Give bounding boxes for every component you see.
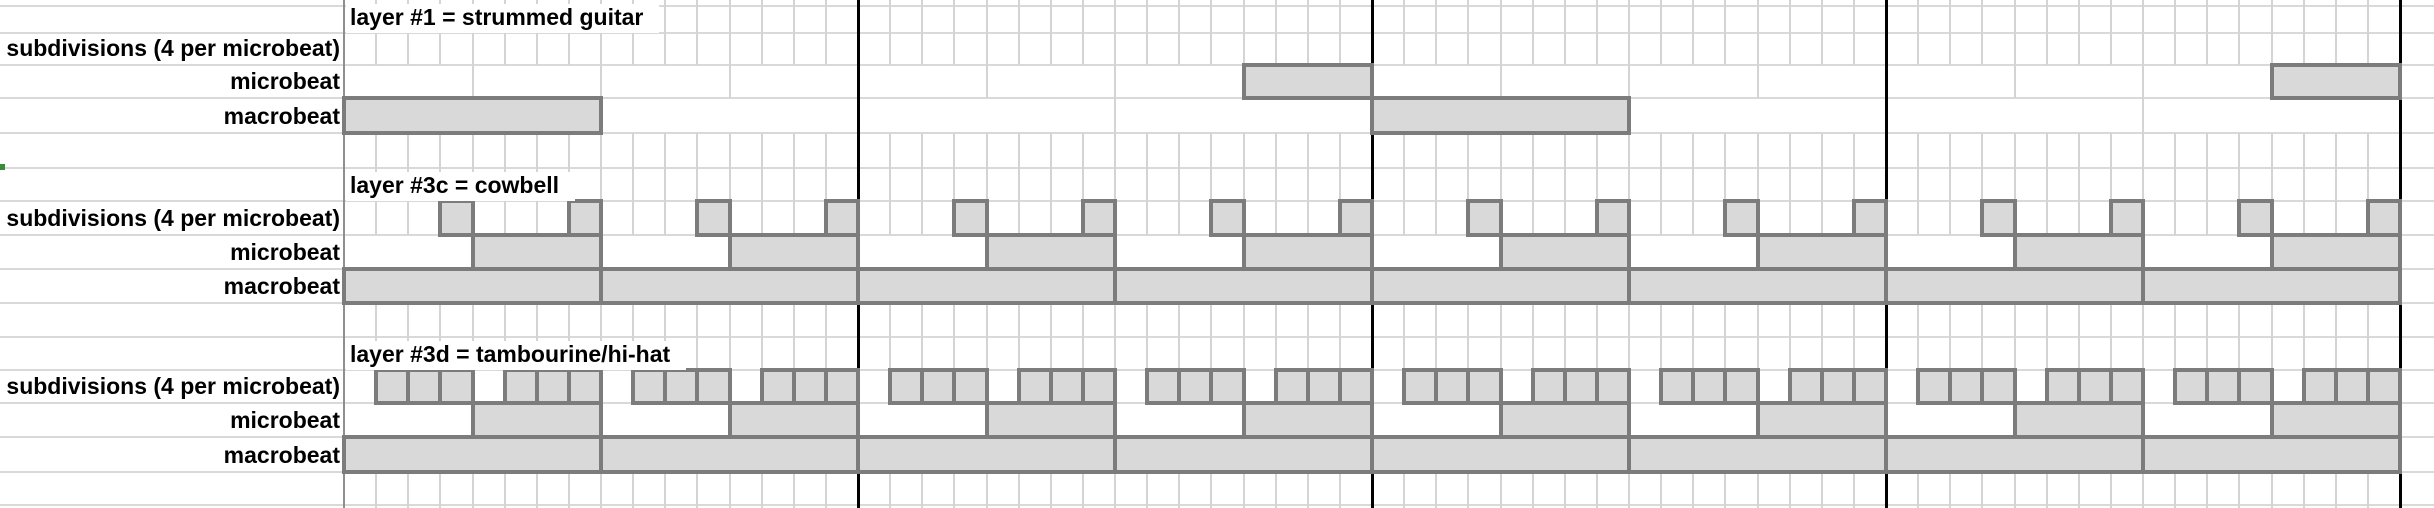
gridline-v [2335, 133, 2337, 168]
gridline-v [2206, 33, 2208, 65]
gridline-v [2206, 133, 2208, 168]
subdivision-cell[interactable] [920, 368, 956, 405]
gridline-v [2367, 337, 2369, 370]
gridline-v [375, 201, 377, 235]
gridline-v [793, 337, 795, 370]
gridline-v [1146, 168, 1148, 201]
gridline-v [2271, 303, 2273, 337]
gridline-v [1178, 303, 1180, 337]
subdivision-cell[interactable] [1466, 368, 1502, 405]
macrobeat-cell[interactable] [1370, 267, 1631, 305]
gridline-v [1243, 33, 1245, 65]
macrobeat-cell[interactable] [1113, 267, 1374, 305]
subdivision-cell[interactable] [2334, 368, 2370, 405]
gridline-v [1243, 472, 1245, 505]
gridline-v [1692, 6, 1694, 33]
subdivision-cell[interactable] [2109, 199, 2145, 237]
gridline-v [2110, 472, 2112, 505]
subdivision-cell[interactable] [1531, 368, 1567, 405]
layer-title: layer #1 = strummed guitar [346, 6, 659, 33]
microbeat-cell[interactable] [2013, 401, 2146, 439]
gridline-v [825, 6, 827, 33]
gridline-v [1724, 6, 1726, 33]
gridline-v [2046, 168, 2048, 201]
gridline-v [504, 201, 506, 235]
gridline-v [2335, 168, 2337, 201]
grid-left-border [343, 0, 345, 508]
gridline-v [2174, 168, 2176, 201]
gridline-v [1596, 168, 1598, 201]
gridline-v [1210, 168, 1212, 201]
gridline-v [1789, 33, 1791, 65]
microbeat-cell[interactable] [2270, 233, 2403, 271]
macrobeat-cell[interactable] [599, 267, 860, 305]
gridline-v [2206, 472, 2208, 505]
gridline-v [921, 6, 923, 33]
gridline-v [1981, 337, 1983, 370]
gridline-v [1050, 33, 1052, 65]
microbeat-cell[interactable] [1756, 233, 1889, 271]
subdivision-cell[interactable] [1563, 368, 1599, 405]
gridline-v [1467, 133, 1469, 168]
subdivision-cell[interactable] [663, 368, 699, 405]
gridline-v [1403, 6, 1405, 33]
gridline-v [921, 472, 923, 505]
gridline-v [2238, 472, 2240, 505]
gridline-v [2303, 472, 2305, 505]
subdivision-cell[interactable] [438, 199, 474, 237]
gridline-v [825, 168, 827, 201]
gridline-v [504, 303, 506, 337]
gridline-v [1917, 133, 1919, 168]
gridline-v [664, 6, 666, 33]
microbeat-cell[interactable] [1499, 233, 1632, 271]
microbeat-cell[interactable] [1242, 233, 1375, 271]
subdivision-cell[interactable] [1209, 368, 1245, 405]
gridline-v [2110, 303, 2112, 337]
gridline-v [664, 472, 666, 505]
gridline-v [1082, 33, 1084, 65]
gridline-v [986, 168, 988, 201]
gridline-v [2367, 168, 2369, 201]
subdivision-cell[interactable] [1338, 368, 1374, 405]
subdivision-cell[interactable] [1723, 199, 1759, 237]
subdivision-cell[interactable] [374, 368, 410, 405]
subdivision-cell[interactable] [760, 368, 796, 405]
gridline-v [1532, 472, 1534, 505]
gridline-v [2335, 201, 2337, 235]
gridline-v [1532, 337, 1534, 370]
gridline-v [2078, 133, 2080, 168]
gridline-v [1564, 337, 1566, 370]
gridline-v [1500, 303, 1502, 337]
gridline-v [2110, 337, 2112, 370]
gridline-v [2238, 303, 2240, 337]
gridline-v [1243, 303, 1245, 337]
gridline-v [2335, 472, 2337, 505]
gridline-v [825, 472, 827, 505]
gridline-v [1018, 337, 1020, 370]
gridline-v [407, 133, 409, 168]
subdivision-cell[interactable] [567, 199, 603, 237]
subdivision-cell[interactable] [2366, 368, 2402, 405]
gridline-v [1500, 337, 1502, 370]
gridline-v [2206, 337, 2208, 370]
gridline-v [2078, 168, 2080, 201]
macrobeat-cell[interactable] [1884, 435, 2145, 474]
gridline-v [889, 133, 891, 168]
subdivision-cell[interactable] [1595, 368, 1631, 405]
gridline-v [729, 337, 731, 370]
gridline-v [2303, 33, 2305, 65]
gridline-v [729, 6, 731, 33]
subdivision-cell[interactable] [1081, 368, 1117, 405]
gridline-v [1564, 303, 1566, 337]
microbeat-cell[interactable] [1242, 63, 1375, 100]
macrobeat-cell[interactable] [1884, 267, 2145, 305]
gridline-v [761, 133, 763, 168]
gridline-v [1178, 6, 1180, 33]
subdivision-cell[interactable] [1691, 368, 1727, 405]
row-label-microbeat: microbeat [0, 403, 340, 437]
gridline-v [472, 65, 474, 98]
gridline-v [1339, 168, 1341, 201]
gridline-v [1628, 168, 1630, 201]
gridline-v [793, 133, 795, 168]
gridline-v [793, 303, 795, 337]
gridline-v [889, 6, 891, 33]
subdivision-cell[interactable] [695, 199, 731, 237]
gridline-v [1435, 201, 1437, 235]
microbeat-cell[interactable] [2013, 233, 2146, 271]
gridline-v [921, 33, 923, 65]
macrobeat-cell[interactable] [2141, 435, 2402, 474]
subdivision-cell[interactable] [824, 199, 860, 237]
macrobeat-cell[interactable] [1627, 435, 1888, 474]
gridline-v [1596, 33, 1598, 65]
subdivision-cell[interactable] [1852, 368, 1888, 405]
microbeat-cell[interactable] [471, 233, 604, 271]
gridline-v [761, 337, 763, 370]
gridline-v [1949, 6, 1951, 33]
subdivision-cell[interactable] [1081, 199, 1117, 237]
microbeat-cell[interactable] [1242, 401, 1375, 439]
gridline-v [407, 33, 409, 65]
gridline-v [2271, 33, 2273, 65]
gridline-v [761, 201, 763, 235]
macrobeat-cell[interactable] [1370, 96, 1631, 135]
gridline-v [889, 472, 891, 505]
microbeat-cell[interactable] [728, 401, 861, 439]
subdivision-cell[interactable] [1402, 368, 1438, 405]
gridline-v [1724, 472, 1726, 505]
subdivision-cell[interactable] [1659, 368, 1695, 405]
subdivision-cell[interactable] [952, 199, 988, 237]
subdivision-cell[interactable] [888, 368, 924, 405]
subdivision-cell[interactable] [1852, 199, 1888, 237]
gridline-v [1853, 168, 1855, 201]
gridline-v [1403, 33, 1405, 65]
gridline-v [1981, 6, 1983, 33]
gridline-v [793, 472, 795, 505]
subdivision-cell[interactable] [1274, 368, 1310, 405]
gridline-v [1403, 133, 1405, 168]
subdivision-cell[interactable] [1338, 199, 1374, 237]
subdivision-cell[interactable] [2077, 368, 2113, 405]
gridline-v [1339, 6, 1341, 33]
gridline-v [1757, 472, 1759, 505]
microbeat-cell[interactable] [2270, 63, 2403, 100]
microbeat-cell[interactable] [1756, 401, 1889, 439]
gridline-v [1532, 201, 1534, 235]
gridline-v [1789, 337, 1791, 370]
microbeat-cell[interactable] [471, 401, 604, 439]
gridline-v [1564, 168, 1566, 201]
macrobeat-cell[interactable] [1370, 435, 1631, 474]
subdivision-cell[interactable] [2237, 368, 2273, 405]
gridline-v [1018, 303, 1020, 337]
subdivision-cell[interactable] [2205, 368, 2241, 405]
gridline-v [375, 133, 377, 168]
gridline-v [632, 201, 634, 235]
gridline-v [1757, 133, 1759, 168]
subdivision-cell[interactable] [503, 368, 539, 405]
subdivision-cell[interactable] [1948, 368, 1984, 405]
gridline-v [1114, 303, 1116, 337]
gridline-v [1243, 337, 1245, 370]
gridline-v [1821, 337, 1823, 370]
gridline-v [2367, 303, 2369, 337]
gridline-v [1050, 337, 1052, 370]
gridline-h [0, 64, 2434, 66]
gridline-v [2142, 133, 2144, 168]
macrobeat-cell[interactable] [599, 435, 860, 474]
gridline-v [889, 168, 891, 201]
layer-title: layer #3d = tambourine/hi-hat [346, 337, 686, 370]
gridline-v [1050, 168, 1052, 201]
gridline-v [1660, 201, 1662, 235]
gridline-v [375, 303, 377, 337]
gridline-v [761, 33, 763, 65]
gridline-v [696, 168, 698, 201]
subdivision-cell[interactable] [1980, 368, 2016, 405]
gridline-v [1467, 33, 1469, 65]
macrobeat-cell[interactable] [856, 267, 1117, 305]
macrobeat-cell[interactable] [1627, 267, 1888, 305]
gridline-v [1307, 33, 1309, 65]
layer-title-text: layer #3c = cowbell [346, 172, 575, 201]
gridline-v [1467, 337, 1469, 370]
subdivision-cell[interactable] [535, 368, 571, 405]
subdivision-cell[interactable] [695, 368, 731, 405]
gridline-v [2206, 6, 2208, 33]
gridline-v [1210, 6, 1212, 33]
gridline-v [2078, 201, 2080, 235]
gridline-v [1821, 472, 1823, 505]
gridline-v [1628, 6, 1630, 33]
gridline-v [2367, 133, 2369, 168]
macrobeat-cell[interactable] [856, 435, 1117, 474]
gridline-v [1307, 168, 1309, 201]
gridline-v [600, 168, 602, 201]
gridline-v [696, 6, 698, 33]
gridline-v [439, 33, 441, 65]
gridline-v [1917, 6, 1919, 33]
gridline-v [2142, 168, 2144, 201]
gridline-v [632, 133, 634, 168]
gridline-v [761, 472, 763, 505]
microbeat-cell[interactable] [2270, 401, 2403, 439]
microbeat-cell[interactable] [985, 401, 1118, 439]
microbeat-cell[interactable] [728, 233, 861, 271]
gridline-v [1467, 303, 1469, 337]
gridline-v [1018, 201, 1020, 235]
gridline-v [2110, 168, 2112, 201]
gridline-v [1660, 6, 1662, 33]
gridline-v [632, 303, 634, 337]
subdivision-cell[interactable] [1177, 368, 1213, 405]
gridline-v [1178, 168, 1180, 201]
gridline-v [407, 303, 409, 337]
gridline-v [504, 472, 506, 505]
gridline-v [953, 168, 955, 201]
gridline-v [1917, 201, 1919, 235]
row-label-subdivisions: subdivisions (4 per microbeat) [0, 33, 340, 65]
microbeat-cell[interactable] [985, 233, 1118, 271]
subdivision-cell[interactable] [1595, 199, 1631, 237]
gridline-v [696, 133, 698, 168]
subdivision-cell[interactable] [1466, 199, 1502, 237]
gridline-v [1692, 168, 1694, 201]
subdivision-cell[interactable] [2109, 368, 2145, 405]
macrobeat-cell[interactable] [342, 96, 603, 135]
subdivision-cell[interactable] [792, 368, 828, 405]
subdivision-cell[interactable] [1209, 199, 1245, 237]
gridline-v [2238, 337, 2240, 370]
subdivision-cell[interactable] [406, 368, 442, 405]
subdivision-cell[interactable] [952, 368, 988, 405]
gridline-v [664, 133, 666, 168]
subdivision-cell[interactable] [1434, 368, 1470, 405]
gridline-v [1692, 133, 1694, 168]
subdivision-cell[interactable] [1017, 368, 1053, 405]
gridline-v [1789, 201, 1791, 235]
gridline-v [1949, 33, 1951, 65]
gridline-v [696, 472, 698, 505]
gridline-v [1275, 201, 1277, 235]
gridline-v [1210, 133, 1212, 168]
subdivision-cell[interactable] [1145, 368, 1181, 405]
gridline-v [1917, 33, 1919, 65]
subdivision-cell[interactable] [2302, 368, 2338, 405]
subdivision-cell[interactable] [824, 368, 860, 405]
microbeat-cell[interactable] [1499, 401, 1632, 439]
gridline-v [1275, 133, 1277, 168]
macrobeat-cell[interactable] [342, 267, 603, 305]
gridline-v [1532, 33, 1534, 65]
subdivision-cell[interactable] [2045, 368, 2081, 405]
gridline-v [2238, 133, 2240, 168]
gridline-v [2014, 65, 2016, 98]
gridline-v [696, 33, 698, 65]
subdivision-cell[interactable] [1980, 199, 2016, 237]
subdivision-cell[interactable] [1723, 368, 1759, 405]
gridline-v [1981, 33, 1983, 65]
macrobeat-cell[interactable] [1113, 435, 1374, 474]
gridline-v [729, 472, 731, 505]
gridline-v [825, 33, 827, 65]
subdivision-cell[interactable] [2366, 199, 2402, 237]
subdivision-cell[interactable] [1788, 368, 1824, 405]
gridline-v [986, 6, 988, 33]
subdivision-cell[interactable] [1916, 368, 1952, 405]
gridline-v [1178, 201, 1180, 235]
subdivision-cell[interactable] [567, 368, 603, 405]
gridline-v [2078, 472, 2080, 505]
gridline-v [1821, 133, 1823, 168]
gridline-v [1339, 337, 1341, 370]
gridline-v [2303, 337, 2305, 370]
subdivision-cell[interactable] [631, 368, 667, 405]
gridline-v [2367, 33, 2369, 65]
subdivision-cell[interactable] [1820, 368, 1856, 405]
gridline-h [0, 504, 2434, 506]
gridline-v [1435, 133, 1437, 168]
gridline-v [1210, 472, 1212, 505]
gridline-v [1981, 303, 1983, 337]
subdivision-cell[interactable] [2237, 199, 2273, 237]
gridline-v [2046, 33, 2048, 65]
subdivision-cell[interactable] [438, 368, 474, 405]
layer-title-text: layer #1 = strummed guitar [346, 4, 659, 33]
gridline-v [1146, 201, 1148, 235]
gridline-v [793, 33, 795, 65]
subdivision-cell[interactable] [2173, 368, 2209, 405]
gridline-v [1114, 98, 1116, 133]
gridline-v [1114, 168, 1116, 201]
macrobeat-cell[interactable] [2141, 267, 2402, 305]
gridline-v [504, 33, 506, 65]
gridline-v [407, 472, 409, 505]
row-label-microbeat: microbeat [0, 235, 340, 269]
gridline-v [1146, 133, 1148, 168]
gridline-v [1757, 337, 1759, 370]
gridline-v [1596, 133, 1598, 168]
gridline-v [1757, 168, 1759, 201]
gridline-v [439, 133, 441, 168]
gridline-v [761, 6, 763, 33]
gridline-v [600, 303, 602, 337]
subdivision-cell[interactable] [1306, 368, 1342, 405]
gridline-v [1500, 472, 1502, 505]
gridline-v [1724, 303, 1726, 337]
gridline-v [1275, 168, 1277, 201]
gridline-v [1243, 133, 1245, 168]
gridline-v [1917, 472, 1919, 505]
gridline-v [1307, 6, 1309, 33]
gridline-v [1757, 33, 1759, 65]
gridline-v [1660, 303, 1662, 337]
gridline-v [2271, 337, 2273, 370]
gridline-v [2046, 6, 2048, 33]
gridline-v [986, 472, 988, 505]
gridline-v [2078, 337, 2080, 370]
gridline-v [1114, 6, 1116, 33]
gridline-v [1275, 303, 1277, 337]
subdivision-cell[interactable] [1049, 368, 1085, 405]
macrobeat-cell[interactable] [342, 435, 603, 474]
gridline-v [2046, 472, 2048, 505]
